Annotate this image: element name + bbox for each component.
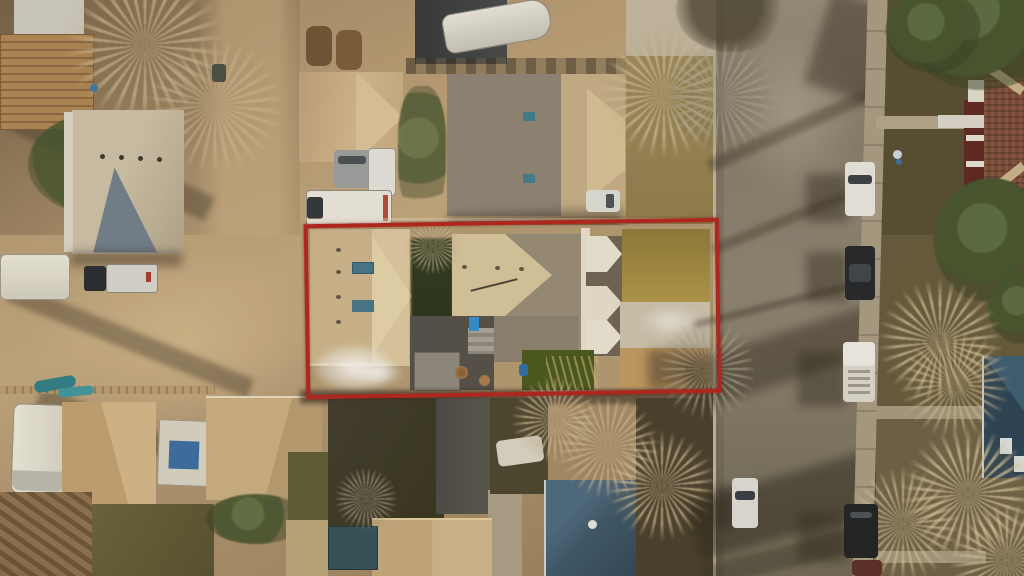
grass-olive-left-of-lotbottom xyxy=(288,452,330,528)
tan-roof-corner-bl xyxy=(286,520,328,576)
white-car-glass xyxy=(606,194,614,208)
brick-house-trim xyxy=(938,115,988,128)
box-truck-cab xyxy=(307,197,323,219)
bare-tree-east-2 xyxy=(896,330,1014,438)
black-suv-glint xyxy=(850,512,872,518)
car-shadow-2 xyxy=(806,252,848,302)
gray-car-windshield xyxy=(338,156,366,164)
person-on-lawn xyxy=(893,150,902,159)
roof-vents xyxy=(100,154,105,159)
bush-column-mid xyxy=(398,86,446,216)
bare-tree-star xyxy=(334,466,398,532)
debris-corner xyxy=(0,492,92,576)
gray-gable-house-dark-gable xyxy=(72,110,184,254)
trash-bin xyxy=(212,64,226,82)
shed-blue-tarp xyxy=(157,419,209,487)
white-pickup-bed-stripes xyxy=(848,370,870,396)
white-hatchback-west xyxy=(732,478,758,528)
white-suv-windshield xyxy=(848,175,872,184)
pickup-cab xyxy=(84,266,106,291)
aerial-photo-scene xyxy=(0,0,1024,576)
white-pickup xyxy=(843,342,875,402)
white-car-by-big-house xyxy=(586,190,620,212)
white-suv xyxy=(845,162,875,216)
black-suv xyxy=(844,504,878,558)
tan-roof-bottom-center xyxy=(372,518,492,576)
rv-bottomleft xyxy=(10,403,67,495)
white-hatchback-glass xyxy=(735,491,755,500)
dark-red-car-partial xyxy=(852,560,882,576)
gray-gable-house xyxy=(72,110,184,254)
dumpster xyxy=(328,526,378,570)
fence-line-bl xyxy=(0,386,215,394)
pickup-red-mark xyxy=(146,272,151,282)
big-house-gray-wing xyxy=(447,74,561,216)
brick-house-windows xyxy=(966,135,984,141)
gray-gable-house-wall xyxy=(64,112,73,252)
blue-item-dot xyxy=(90,84,98,92)
car-shadow-5 xyxy=(798,512,846,562)
dark-roof-outbuilding xyxy=(436,396,490,514)
blue-house-chimney xyxy=(588,520,597,529)
rv-front-cap xyxy=(12,470,65,492)
white-pickup-cab xyxy=(843,342,875,366)
stroller-blue xyxy=(896,159,902,165)
gray-car-top xyxy=(334,150,370,188)
dark-sedan xyxy=(845,246,875,300)
white-van-top xyxy=(368,148,396,196)
pale-paving-belowlot xyxy=(488,490,522,576)
dark-sedan-roof xyxy=(849,264,871,282)
car-shadow-1 xyxy=(806,174,848,222)
big-house-skylights xyxy=(523,112,535,121)
bare-tree-street-top xyxy=(664,36,776,158)
travel-trailer xyxy=(0,254,70,300)
car-shadow-3 xyxy=(798,352,846,406)
mulch-bed xyxy=(306,26,332,66)
blue-tarp xyxy=(168,441,199,470)
car-shadow-4 xyxy=(714,486,734,530)
property-boundary-outline xyxy=(304,218,722,399)
